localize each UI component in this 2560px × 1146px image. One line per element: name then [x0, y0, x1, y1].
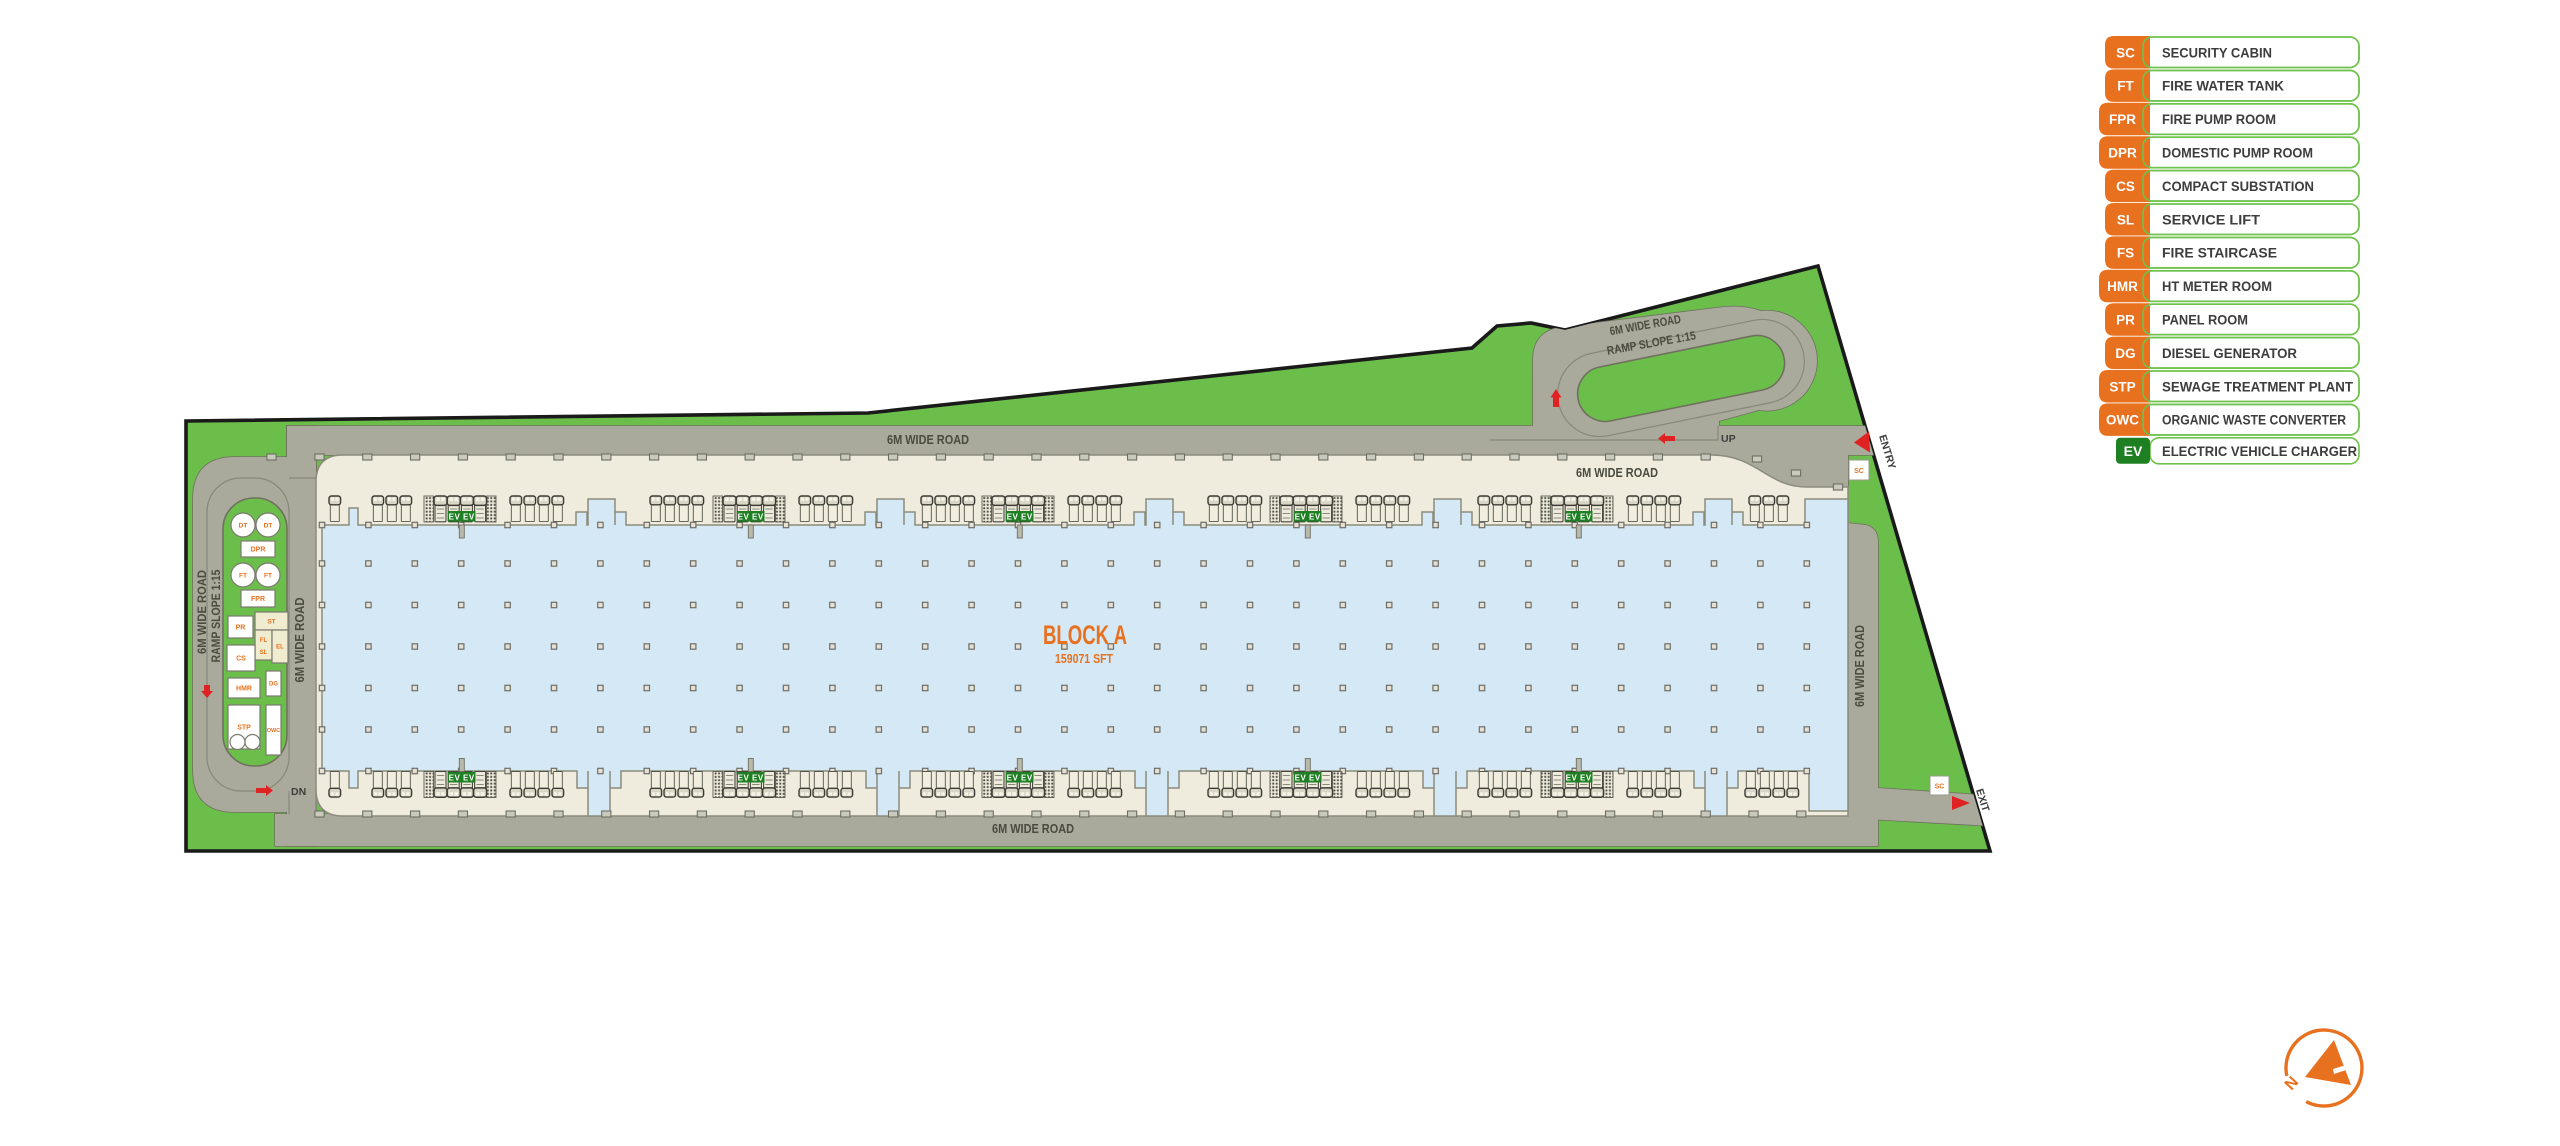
svg-text:EV EV: EV EV: [1295, 774, 1321, 783]
svg-text:N: N: [2282, 1074, 2302, 1094]
svg-text:6M WIDE ROAD: 6M WIDE ROAD: [1576, 465, 1658, 480]
svg-text:EV EV: EV EV: [1566, 774, 1592, 783]
svg-text:159071 SFT: 159071 SFT: [1055, 652, 1113, 666]
svg-text:FL: FL: [260, 638, 268, 644]
svg-text:DT: DT: [239, 522, 248, 529]
svg-text:EV: EV: [2124, 443, 2143, 459]
svg-text:SERVICE LIFT: SERVICE LIFT: [2162, 212, 2261, 227]
svg-text:FT: FT: [264, 572, 272, 579]
svg-text:6M WIDE ROAD: 6M WIDE ROAD: [1852, 625, 1867, 707]
svg-text:ST: ST: [267, 618, 275, 625]
svg-text:HMR: HMR: [236, 686, 252, 693]
svg-text:SL: SL: [260, 650, 268, 656]
svg-text:EV EV: EV EV: [449, 774, 475, 783]
svg-text:FS: FS: [2117, 246, 2134, 261]
svg-text:HT METER ROOM: HT METER ROOM: [2162, 279, 2272, 294]
svg-text:CS: CS: [236, 656, 246, 663]
svg-text:PR: PR: [2116, 312, 2135, 327]
svg-text:DPR: DPR: [251, 547, 266, 554]
svg-text:SEWAGE TREATMENT PLANT: SEWAGE TREATMENT PLANT: [2162, 379, 2354, 394]
svg-text:DOMESTIC PUMP ROOM: DOMESTIC PUMP ROOM: [2162, 145, 2313, 160]
svg-text:FPR: FPR: [251, 596, 265, 603]
svg-text:ELECTRIC VEHICLE CHARGER: ELECTRIC VEHICLE CHARGER: [2162, 444, 2357, 459]
svg-text:EL: EL: [276, 645, 284, 651]
svg-text:PR: PR: [236, 625, 246, 632]
svg-text:FT: FT: [2117, 79, 2134, 94]
svg-text:STP: STP: [237, 725, 251, 732]
svg-text:EV EV: EV EV: [1295, 513, 1321, 522]
svg-text:FIRE PUMP ROOM: FIRE PUMP ROOM: [2162, 112, 2276, 127]
svg-text:ORGANIC WASTE CONVERTER: ORGANIC WASTE CONVERTER: [2162, 413, 2346, 428]
svg-text:SC: SC: [1854, 468, 1864, 475]
svg-text:PANEL ROOM: PANEL ROOM: [2162, 312, 2248, 327]
svg-text:DIESEL GENERATOR: DIESEL GENERATOR: [2162, 346, 2297, 361]
svg-text:BLOCK A: BLOCK A: [1043, 620, 1127, 650]
svg-text:6M WIDE ROAD: 6M WIDE ROAD: [887, 432, 969, 447]
svg-text:DN: DN: [291, 786, 306, 798]
svg-text:DT: DT: [264, 522, 273, 529]
svg-text:ENTRY: ENTRY: [1876, 433, 1898, 470]
svg-text:OWC: OWC: [2106, 413, 2139, 428]
svg-text:SC: SC: [1935, 784, 1945, 791]
svg-text:EV EV: EV EV: [738, 774, 764, 783]
svg-text:EV EV: EV EV: [1007, 513, 1033, 522]
svg-text:COMPACT SUBSTATION: COMPACT SUBSTATION: [2162, 179, 2314, 194]
svg-text:FIRE STAIRCASE: FIRE STAIRCASE: [2162, 246, 2277, 261]
svg-text:FT: FT: [239, 572, 247, 579]
svg-text:EV EV: EV EV: [1007, 774, 1033, 783]
svg-text:DPR: DPR: [2108, 145, 2137, 160]
svg-text:UP: UP: [1721, 433, 1736, 445]
svg-text:RAMP SLOPE 1:15: RAMP SLOPE 1:15: [211, 569, 223, 663]
svg-text:FIRE WATER TANK: FIRE WATER TANK: [2162, 79, 2284, 94]
svg-text:6M WIDE ROAD: 6M WIDE ROAD: [292, 598, 307, 683]
svg-text:DG: DG: [269, 682, 278, 688]
svg-text:SECURITY CABIN: SECURITY CABIN: [2162, 45, 2272, 60]
svg-text:6M WIDE ROAD: 6M WIDE ROAD: [197, 570, 209, 654]
svg-text:HMR: HMR: [2107, 279, 2138, 294]
svg-text:FPR: FPR: [2109, 112, 2136, 127]
svg-text:OWC: OWC: [267, 728, 280, 734]
svg-text:6M WIDE ROAD: 6M WIDE ROAD: [992, 821, 1074, 836]
svg-text:DG: DG: [2115, 346, 2135, 361]
svg-text:SL: SL: [2117, 212, 2134, 227]
svg-text:EV EV: EV EV: [449, 513, 475, 522]
svg-text:EV EV: EV EV: [1566, 513, 1592, 522]
svg-text:STP: STP: [2109, 379, 2135, 394]
svg-text:SC: SC: [2116, 45, 2135, 60]
svg-text:EV EV: EV EV: [738, 513, 764, 522]
svg-text:CS: CS: [2116, 179, 2135, 194]
